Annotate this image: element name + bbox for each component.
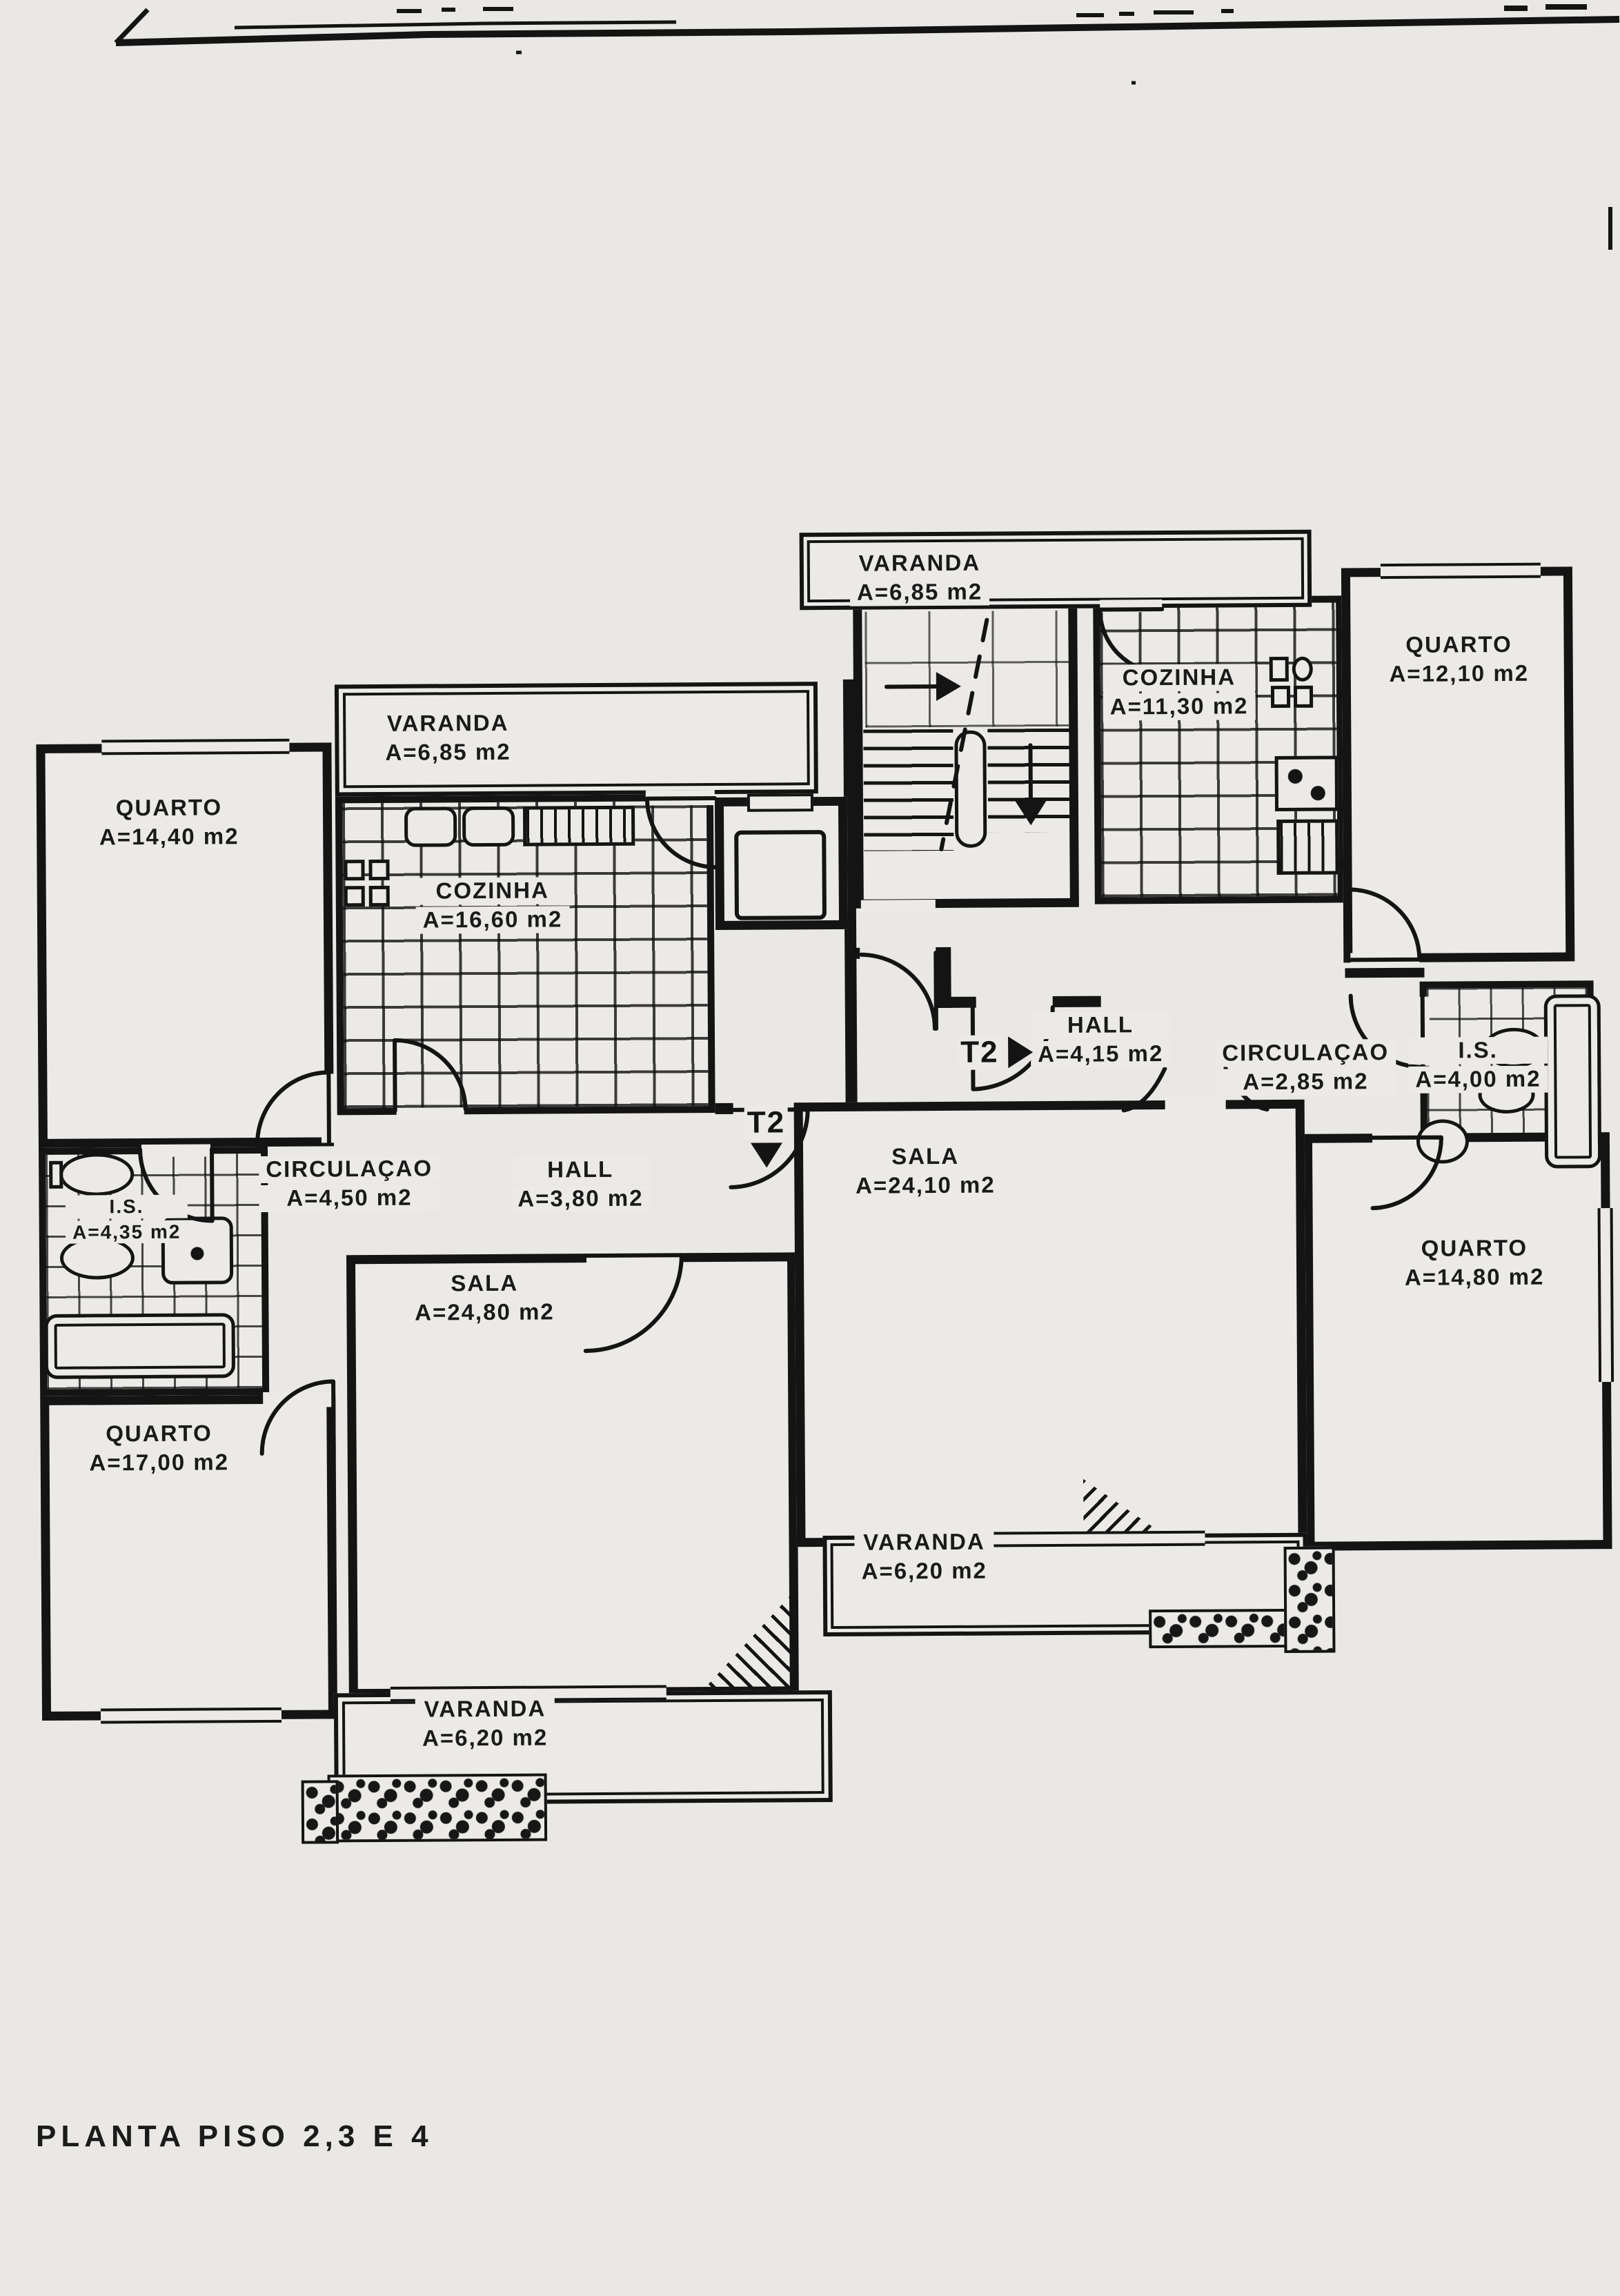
drawing-title: PLANTA PISO 2,3 E 4	[36, 2119, 433, 2154]
scan-edge-artifacts	[0, 0, 1620, 2296]
scanned-floor-plan-page: VARANDA A=6,85 m2 QUARTO A=12,10 m2 COZI…	[0, 0, 1620, 2296]
